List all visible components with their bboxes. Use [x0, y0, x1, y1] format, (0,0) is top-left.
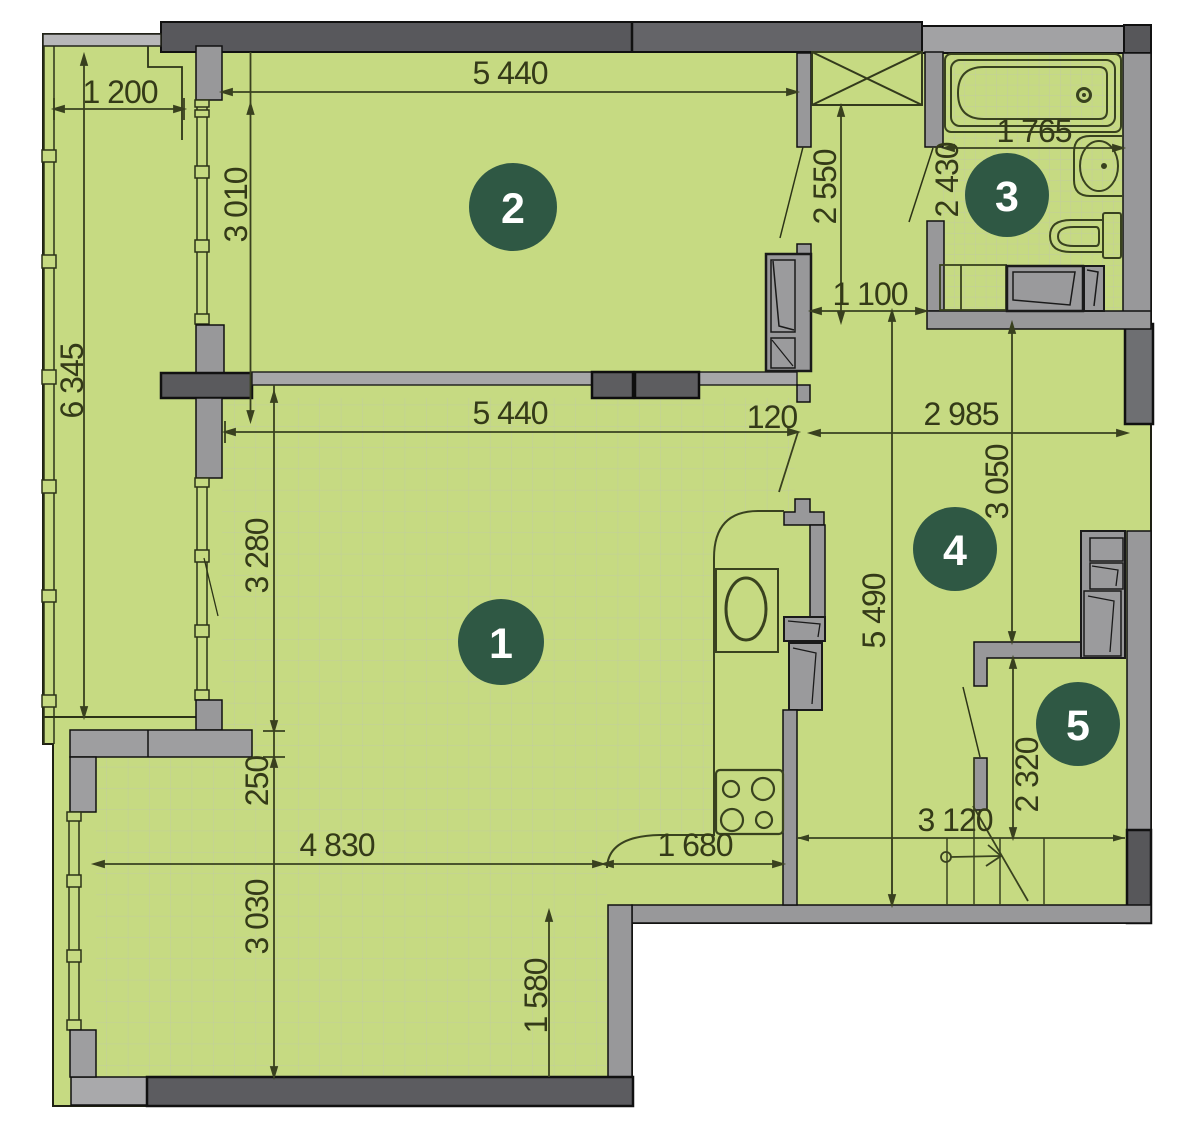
svg-text:3 280: 3 280 — [239, 518, 275, 593]
svg-text:5 490: 5 490 — [856, 573, 892, 648]
svg-text:1 100: 1 100 — [832, 276, 907, 312]
svg-text:250: 250 — [239, 756, 275, 807]
svg-text:2 430: 2 430 — [929, 142, 965, 217]
svg-text:2 320: 2 320 — [1009, 737, 1045, 812]
svg-text:1: 1 — [489, 620, 513, 668]
svg-text:1 680: 1 680 — [657, 827, 732, 863]
svg-text:4: 4 — [943, 527, 967, 575]
svg-text:5 440: 5 440 — [472, 395, 547, 431]
svg-text:3 120: 3 120 — [917, 802, 992, 838]
svg-text:120: 120 — [747, 399, 798, 435]
svg-text:3 050: 3 050 — [979, 444, 1015, 519]
svg-text:3 010: 3 010 — [218, 167, 254, 242]
svg-text:1 580: 1 580 — [518, 958, 554, 1033]
svg-text:5 440: 5 440 — [472, 55, 547, 91]
svg-text:2: 2 — [501, 185, 525, 233]
svg-text:1 765: 1 765 — [996, 113, 1071, 149]
svg-text:4 830: 4 830 — [299, 827, 374, 863]
svg-text:1 200: 1 200 — [82, 74, 157, 110]
svg-text:3: 3 — [995, 173, 1019, 221]
svg-text:2 985: 2 985 — [923, 396, 998, 432]
svg-text:2 550: 2 550 — [807, 149, 843, 224]
svg-text:3 030: 3 030 — [239, 879, 275, 954]
svg-text:6 345: 6 345 — [54, 343, 90, 418]
svg-text:5: 5 — [1066, 702, 1090, 750]
